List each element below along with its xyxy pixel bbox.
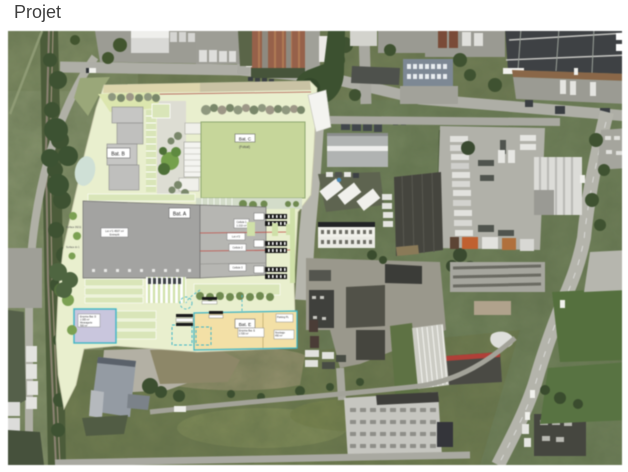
svg-text:Cellule 3: Cellule 3: [232, 266, 243, 270]
svg-text:Parking PL: Parking PL: [277, 316, 289, 319]
svg-text:1 530 m²: 1 530 m²: [239, 333, 249, 336]
svg-text:Bat. C: Bat. C: [239, 137, 251, 142]
svg-text:Lot n°1 4507 m²: Lot n°1 4507 m²: [105, 229, 124, 233]
svg-text:Lot n°2: Lot n°2: [232, 235, 241, 239]
svg-text:Cellule 1: Cellule 1: [236, 220, 247, 224]
svg-text:Bat. B: Bat. B: [111, 152, 125, 158]
svg-text:Entrepôt: Entrepôt: [110, 233, 120, 237]
svg-text:500 m²: 500 m²: [80, 325, 88, 328]
svg-text:Surface 36211: Surface 36211: [66, 226, 82, 229]
svg-text:(Futsal): (Futsal): [239, 145, 250, 149]
svg-text:Surface dv 1: Surface dv 1: [66, 246, 80, 249]
svg-text:1 210 m²: 1 210 m²: [236, 224, 246, 228]
svg-text:Cellule 2: Cellule 2: [232, 246, 243, 250]
svg-text:450 m²: 450 m²: [275, 335, 283, 338]
svg-text:Bat. E: Bat. E: [239, 322, 252, 327]
svg-text:Bat. A: Bat. A: [173, 212, 187, 218]
